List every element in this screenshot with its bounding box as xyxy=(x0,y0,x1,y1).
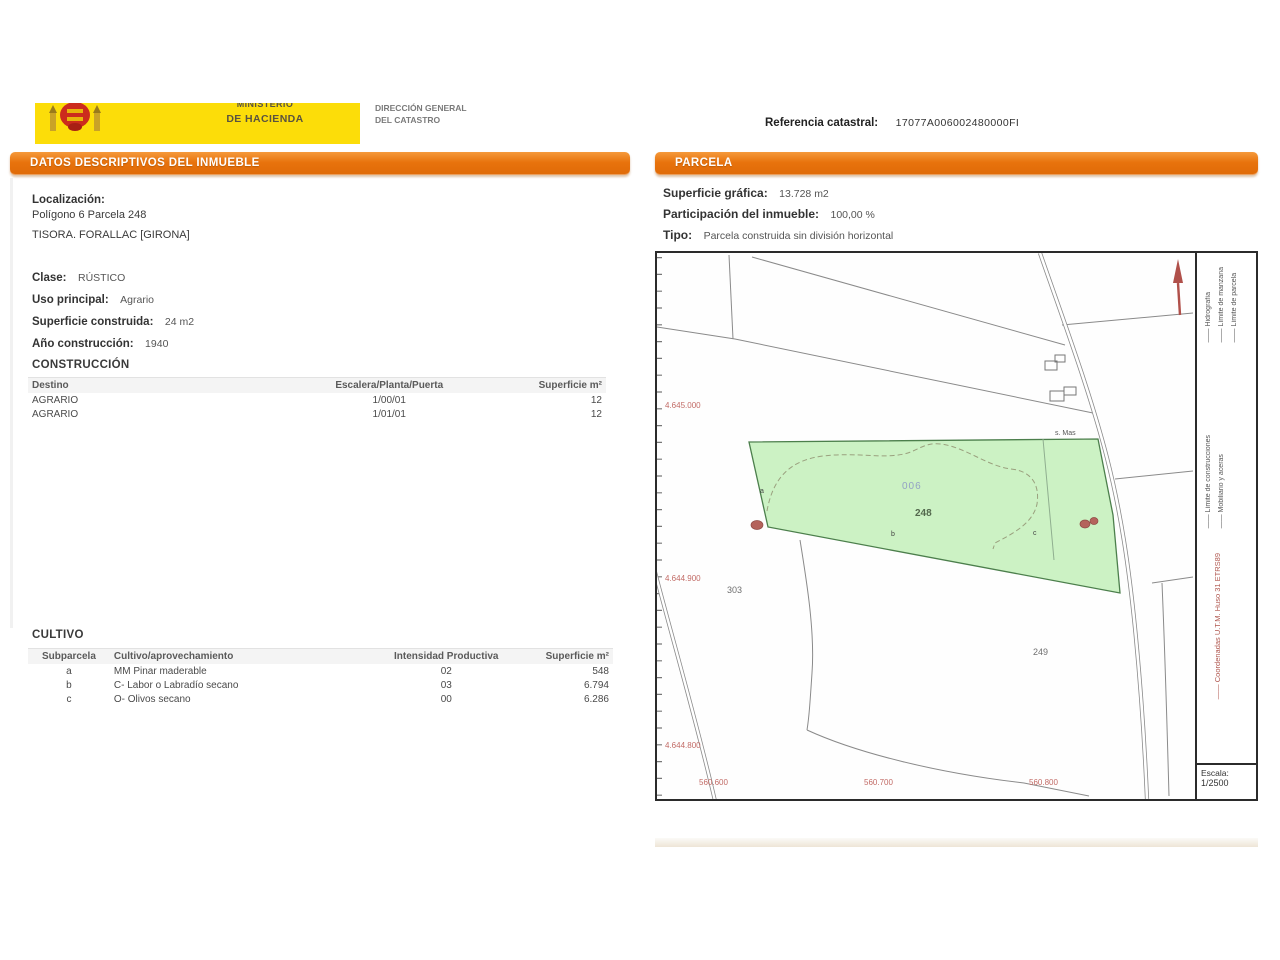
cadastral-reference: Referencia catastral: 17077A006002480000… xyxy=(765,115,1019,129)
col-superficie-cultivo: Superficie m² xyxy=(525,649,613,665)
y-coord-label: 4.645.000 xyxy=(665,401,701,410)
y-coord-label: 4.644.800 xyxy=(665,741,701,750)
map-canvas: 4.645.000 4.644.900 4.644.800 560.600 56… xyxy=(657,253,1193,799)
localizacion-label: Localización: xyxy=(32,190,105,208)
ministry-name: MINISTERIO DE HACIENDA xyxy=(185,103,345,126)
boundary-line xyxy=(1162,583,1169,796)
table-row: AGRARIO 1/01/01 12 xyxy=(28,407,606,421)
next-section-edge xyxy=(655,838,1258,847)
place-label: s. Mas xyxy=(1055,430,1076,437)
legend-item: Límite de parcela xyxy=(1230,267,1239,343)
legend-item: Límite de manzana xyxy=(1217,267,1226,343)
map-legend-sidebar: Hidrografía Límite de manzana Límite de … xyxy=(1195,253,1256,799)
subparcel-letter: b xyxy=(891,531,895,538)
cadastral-document-page: MINISTERIO DE HACIENDA DIRECCIÓN GENERAL… xyxy=(0,0,1280,960)
boundary-line xyxy=(1115,471,1193,479)
legend-item: Mobiliario y aceras xyxy=(1217,435,1226,528)
section-bar-parcela: PARCELA xyxy=(655,152,1258,175)
field-uso-principal: Uso principal: Agrario xyxy=(32,290,154,308)
neighbor-parcel-label: 249 xyxy=(1033,647,1048,657)
col-escalera: Escalera/Planta/Puerta xyxy=(288,378,490,394)
section-bar-datos-descriptivos: DATOS DESCRIPTIVOS DEL INMUEBLE xyxy=(10,152,630,175)
col-subparcela: Subparcela xyxy=(28,649,110,665)
legend-group-1: Hidrografía Límite de manzana Límite de … xyxy=(1204,267,1239,343)
table-row: b C- Labor o Labradío secano 03 6.794 xyxy=(28,678,613,692)
x-coord-label: 560.600 xyxy=(699,778,728,787)
boundary-line xyxy=(1062,313,1193,325)
agency-name: DIRECCIÓN GENERAL DEL CATASTRO xyxy=(375,100,495,144)
field-participacion: Participación del inmueble: 100,00 % xyxy=(663,205,875,223)
legend-item: Hidrografía xyxy=(1204,267,1213,343)
boundary-line xyxy=(657,327,1093,413)
table-row: c O- Olivos secano 00 6.286 xyxy=(28,692,613,706)
construccion-title: CONSTRUCCIÓN xyxy=(32,359,130,371)
x-coord-label: 560.800 xyxy=(1029,778,1058,787)
legend-group-red: Coordenadas U.T.M. Huso 31 ETRS89 xyxy=(1213,553,1222,699)
scale-box: Escala: 1/2500 xyxy=(1197,763,1256,799)
construccion-header-row: Destino Escalera/Planta/Puerta Superfici… xyxy=(28,378,606,394)
neighbor-parcel-label: 303 xyxy=(727,585,742,595)
parcel-number-label: 248 xyxy=(915,508,932,519)
subparcel-letter: c xyxy=(1033,530,1037,537)
boundary-line xyxy=(800,540,813,730)
road-fill xyxy=(657,568,715,799)
gov-banner: MINISTERIO DE HACIENDA xyxy=(35,103,360,144)
col-intensidad: Intensidad Productiva xyxy=(367,649,525,665)
construccion-table: Destino Escalera/Planta/Puerta Superfici… xyxy=(28,377,606,421)
cultivo-header-row: Subparcela Cultivo/aprovechamiento Inten… xyxy=(28,649,613,665)
spain-coat-of-arms-icon xyxy=(43,103,107,144)
cultivo-table: Subparcela Cultivo/aprovechamiento Inten… xyxy=(28,648,613,706)
field-tipo: Tipo: Parcela construida sin división ho… xyxy=(663,226,893,244)
cadastral-ref-value: 17077A006002480000FI xyxy=(896,117,1020,129)
cultivo-title: CULTIVO xyxy=(32,629,84,641)
field-ano-construccion: Año construcción: 1940 xyxy=(32,334,168,352)
building-outlines xyxy=(1045,355,1076,401)
localizacion-line1: Polígono 6 Parcela 248 xyxy=(32,209,146,221)
y-coord-label: 4.644.900 xyxy=(665,574,701,583)
legend-item: Límite de construcciones xyxy=(1204,435,1213,528)
field-superficie-construida: Superficie construida: 24 m2 xyxy=(32,312,194,330)
cadastral-ref-label: Referencia catastral: xyxy=(765,117,878,129)
scale-label: Escala: xyxy=(1201,768,1252,778)
x-coord-label: 560.700 xyxy=(864,778,893,787)
col-destino: Destino xyxy=(28,378,288,394)
boundary-line xyxy=(1152,577,1193,583)
cadastral-map: 4.645.000 4.644.900 4.644.800 560.600 56… xyxy=(655,251,1258,801)
left-panel-edge xyxy=(10,178,13,628)
subparcel-polygon-label: 006 xyxy=(902,481,922,492)
field-superficie-grafica: Superficie gráfica: 13.728 m2 xyxy=(663,184,829,202)
field-clase: Clase: RÚSTICO xyxy=(32,268,125,286)
col-cultivo: Cultivo/aprovechamiento xyxy=(110,649,367,665)
legend-group-2: Límite de construcciones Mobiliario y ac… xyxy=(1204,435,1226,528)
subparcel-letter: a xyxy=(760,488,764,495)
table-row: a MM Pinar maderable 02 548 xyxy=(28,664,613,678)
localizacion-line2: TISORA. FORALLAC [GIRONA] xyxy=(32,229,190,241)
table-row: AGRARIO 1/00/01 12 xyxy=(28,393,606,407)
col-superficie: Superficie m² xyxy=(490,378,606,394)
boundary-line xyxy=(752,257,1065,345)
legend-red-note: Coordenadas U.T.M. Huso 31 ETRS89 xyxy=(1213,553,1222,699)
boundary-line xyxy=(729,255,733,339)
scale-value: 1/2500 xyxy=(1201,778,1252,788)
north-arrow-icon xyxy=(1173,259,1183,315)
